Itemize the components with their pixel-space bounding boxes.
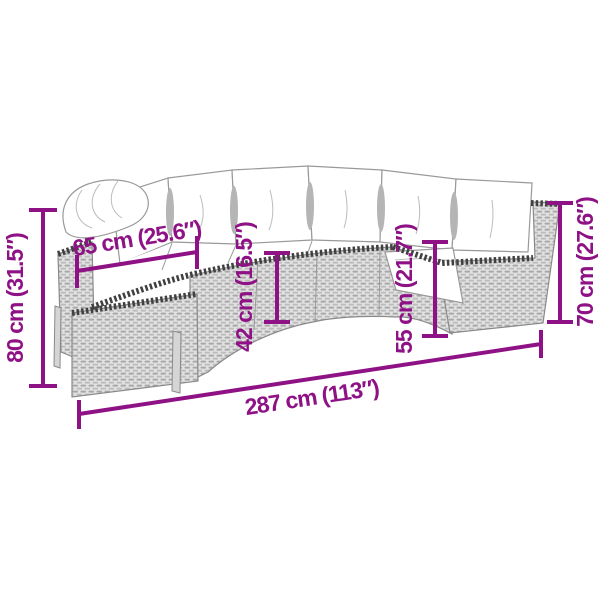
sofa-leg <box>54 306 61 368</box>
dimension-label-bottom-width: 287 cm (113″) <box>243 374 381 420</box>
product-dimension-diagram: 80 cm (31.5″) 65 cm (25.6″) 42 cm (16.5″… <box>0 0 600 600</box>
dimension-left-height: 80 cm (31.5″) <box>2 210 57 386</box>
back-cushion <box>308 166 382 242</box>
cushion-gap <box>306 182 314 230</box>
cushion-gap <box>450 192 458 240</box>
sofa-dimension-illustration: 80 cm (31.5″) 65 cm (25.6″) 42 cm (16.5″… <box>0 0 600 600</box>
dimension-label-mid-right-height: 55 cm (21.7″) <box>391 224 417 354</box>
dimension-label-right-height: 70 cm (27.6″) <box>572 197 598 327</box>
sofa-illustration <box>54 166 560 397</box>
dimension-label-left-height: 80 cm (31.5″) <box>2 233 28 363</box>
dimension-label-mid-left-height: 42 cm (16.5″) <box>231 222 257 352</box>
back-cushion <box>452 179 532 252</box>
cushion-gap <box>377 184 385 232</box>
sofa-leg <box>172 331 181 393</box>
